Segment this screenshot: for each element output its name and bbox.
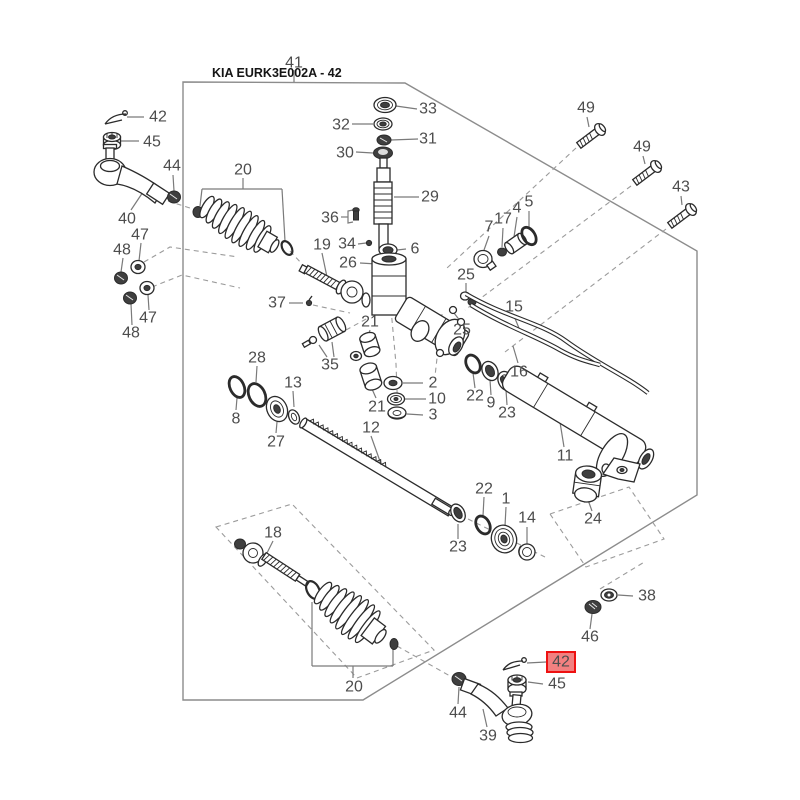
callout-7-21: 7 [485, 219, 494, 236]
callout-3-42: 3 [429, 407, 438, 424]
callout-2-40: 2 [429, 375, 438, 392]
callout-37-20: 37 [268, 295, 286, 312]
callout-23-50: 23 [449, 539, 467, 556]
callout-49-29: 49 [577, 100, 595, 117]
callout-1-48: 1 [502, 491, 511, 508]
callout-14-49: 14 [518, 510, 536, 527]
part-45-castle-nut-bottom [508, 675, 526, 694]
part-49-bolt-2 [631, 158, 664, 187]
callout-20-5: 20 [234, 162, 252, 179]
callout-47-6: 47 [131, 227, 149, 244]
parts-diagram-page: KIA EURK3E002A - 42 [0, 0, 800, 800]
callout-10-41: 10 [428, 391, 446, 408]
callout-30-13: 30 [336, 145, 354, 162]
callout-35-36: 35 [321, 357, 339, 374]
callout-28-32: 28 [248, 350, 266, 367]
callout-39-59: 39 [479, 728, 497, 745]
callout-24-51: 24 [584, 511, 602, 528]
callout-18-52: 18 [264, 525, 282, 542]
callout-20-53: 20 [345, 679, 363, 696]
part-31-nut [377, 135, 391, 145]
part-37-pin [306, 296, 312, 306]
part-20-boot-top [193, 189, 295, 263]
callout-22-43: 22 [466, 388, 484, 405]
callout-41-0: 41 [285, 55, 303, 72]
callout-47-8: 47 [139, 310, 157, 327]
callout-22-47: 22 [475, 481, 493, 498]
part-44-nut-top [168, 191, 181, 203]
part-3-cap [388, 407, 406, 419]
part-42-cotter-pin-top [105, 111, 127, 124]
callout-45-57: 45 [548, 676, 566, 693]
callout-38-54: 38 [638, 588, 656, 605]
callout-44-3: 44 [163, 158, 181, 175]
part-18-inner-tie-rod [235, 539, 323, 601]
callout-45-2: 45 [143, 134, 161, 151]
part-43-bolt [666, 201, 699, 230]
part-30-washer [374, 147, 393, 159]
callout-5-24: 5 [525, 194, 534, 211]
callout-32-11: 32 [332, 117, 350, 134]
part-24-mount-bushing [572, 464, 603, 503]
callout-46-55: 46 [581, 629, 599, 646]
part-46-nut [585, 601, 601, 614]
callout-4-23: 4 [513, 200, 522, 217]
part-32-washer [374, 118, 392, 130]
part-8-o-ring [226, 374, 248, 400]
callout-25-25: 25 [457, 267, 475, 284]
part-36-bolt [353, 208, 359, 220]
part-38-washer [601, 589, 617, 601]
callout-29-14: 29 [421, 189, 439, 206]
callout-27-34: 27 [267, 434, 285, 451]
part-1-plug [487, 522, 520, 557]
part-22-o-ring-mid [463, 353, 483, 376]
callout-19-16: 19 [313, 237, 331, 254]
callout-13-35: 13 [284, 375, 302, 392]
callout-25-26: 25 [453, 322, 471, 339]
callout-26-19: 26 [339, 255, 357, 272]
callout-36-15: 36 [321, 210, 339, 227]
callout-16-28: 16 [510, 364, 528, 381]
part-17-ring [498, 248, 507, 256]
callout-15-27: 15 [505, 299, 523, 316]
part-28-o-ring [245, 381, 270, 410]
callout-21-38: 21 [368, 399, 386, 416]
callout-12-39: 12 [362, 420, 380, 437]
callout-31-12: 31 [419, 131, 437, 148]
part-34-pin [366, 240, 371, 245]
exploded-parts-diagram: KIA EURK3E002A - 42 [0, 0, 800, 800]
part-21-bushing-upper [359, 331, 382, 359]
callout-40-4: 40 [118, 211, 136, 228]
callout-23-45: 23 [498, 405, 516, 422]
callout-43-31: 43 [672, 179, 690, 196]
part-14-cup [519, 544, 535, 560]
part-2-washer [384, 377, 402, 390]
callout-6-18: 6 [411, 241, 420, 258]
part-16-return-pipe [471, 305, 600, 365]
part-49-bolt-1 [575, 121, 608, 150]
part-20-boot-bottom [306, 573, 398, 655]
callout-44-58: 44 [449, 705, 467, 722]
callout-8-33: 8 [232, 411, 241, 428]
callout-33-10: 33 [419, 101, 437, 118]
part-22-o-ring-end [473, 514, 493, 537]
callout-48-9: 48 [122, 325, 140, 342]
part-10-ring [388, 393, 405, 405]
part-13-ring [286, 408, 301, 426]
part-29-pinion-shaft [374, 158, 392, 257]
diagram-title: KIA EURK3E002A - 42 [212, 66, 342, 80]
callout-49-30: 49 [633, 139, 651, 156]
callout-42-56: 42 [552, 654, 570, 671]
part-33-washer [374, 98, 396, 113]
callout-34-17: 34 [338, 236, 356, 253]
part-23-ring-end [448, 502, 468, 525]
part-35-damper [302, 316, 347, 348]
callout-11-46: 11 [557, 448, 574, 465]
callout-9-44: 9 [487, 395, 496, 412]
part-21-bushing-lower [359, 361, 384, 392]
callout-42-1: 42 [149, 109, 167, 126]
part-40-tie-rod-end [94, 145, 170, 205]
callout-48-7: 48 [113, 242, 131, 259]
part-7-clamp [474, 251, 496, 271]
part-42-cotter-pin-highlighted [503, 658, 526, 670]
part-21-washer [351, 352, 362, 361]
callout-21-37: 21 [361, 314, 379, 331]
callout-17-22: 17 [494, 211, 512, 228]
